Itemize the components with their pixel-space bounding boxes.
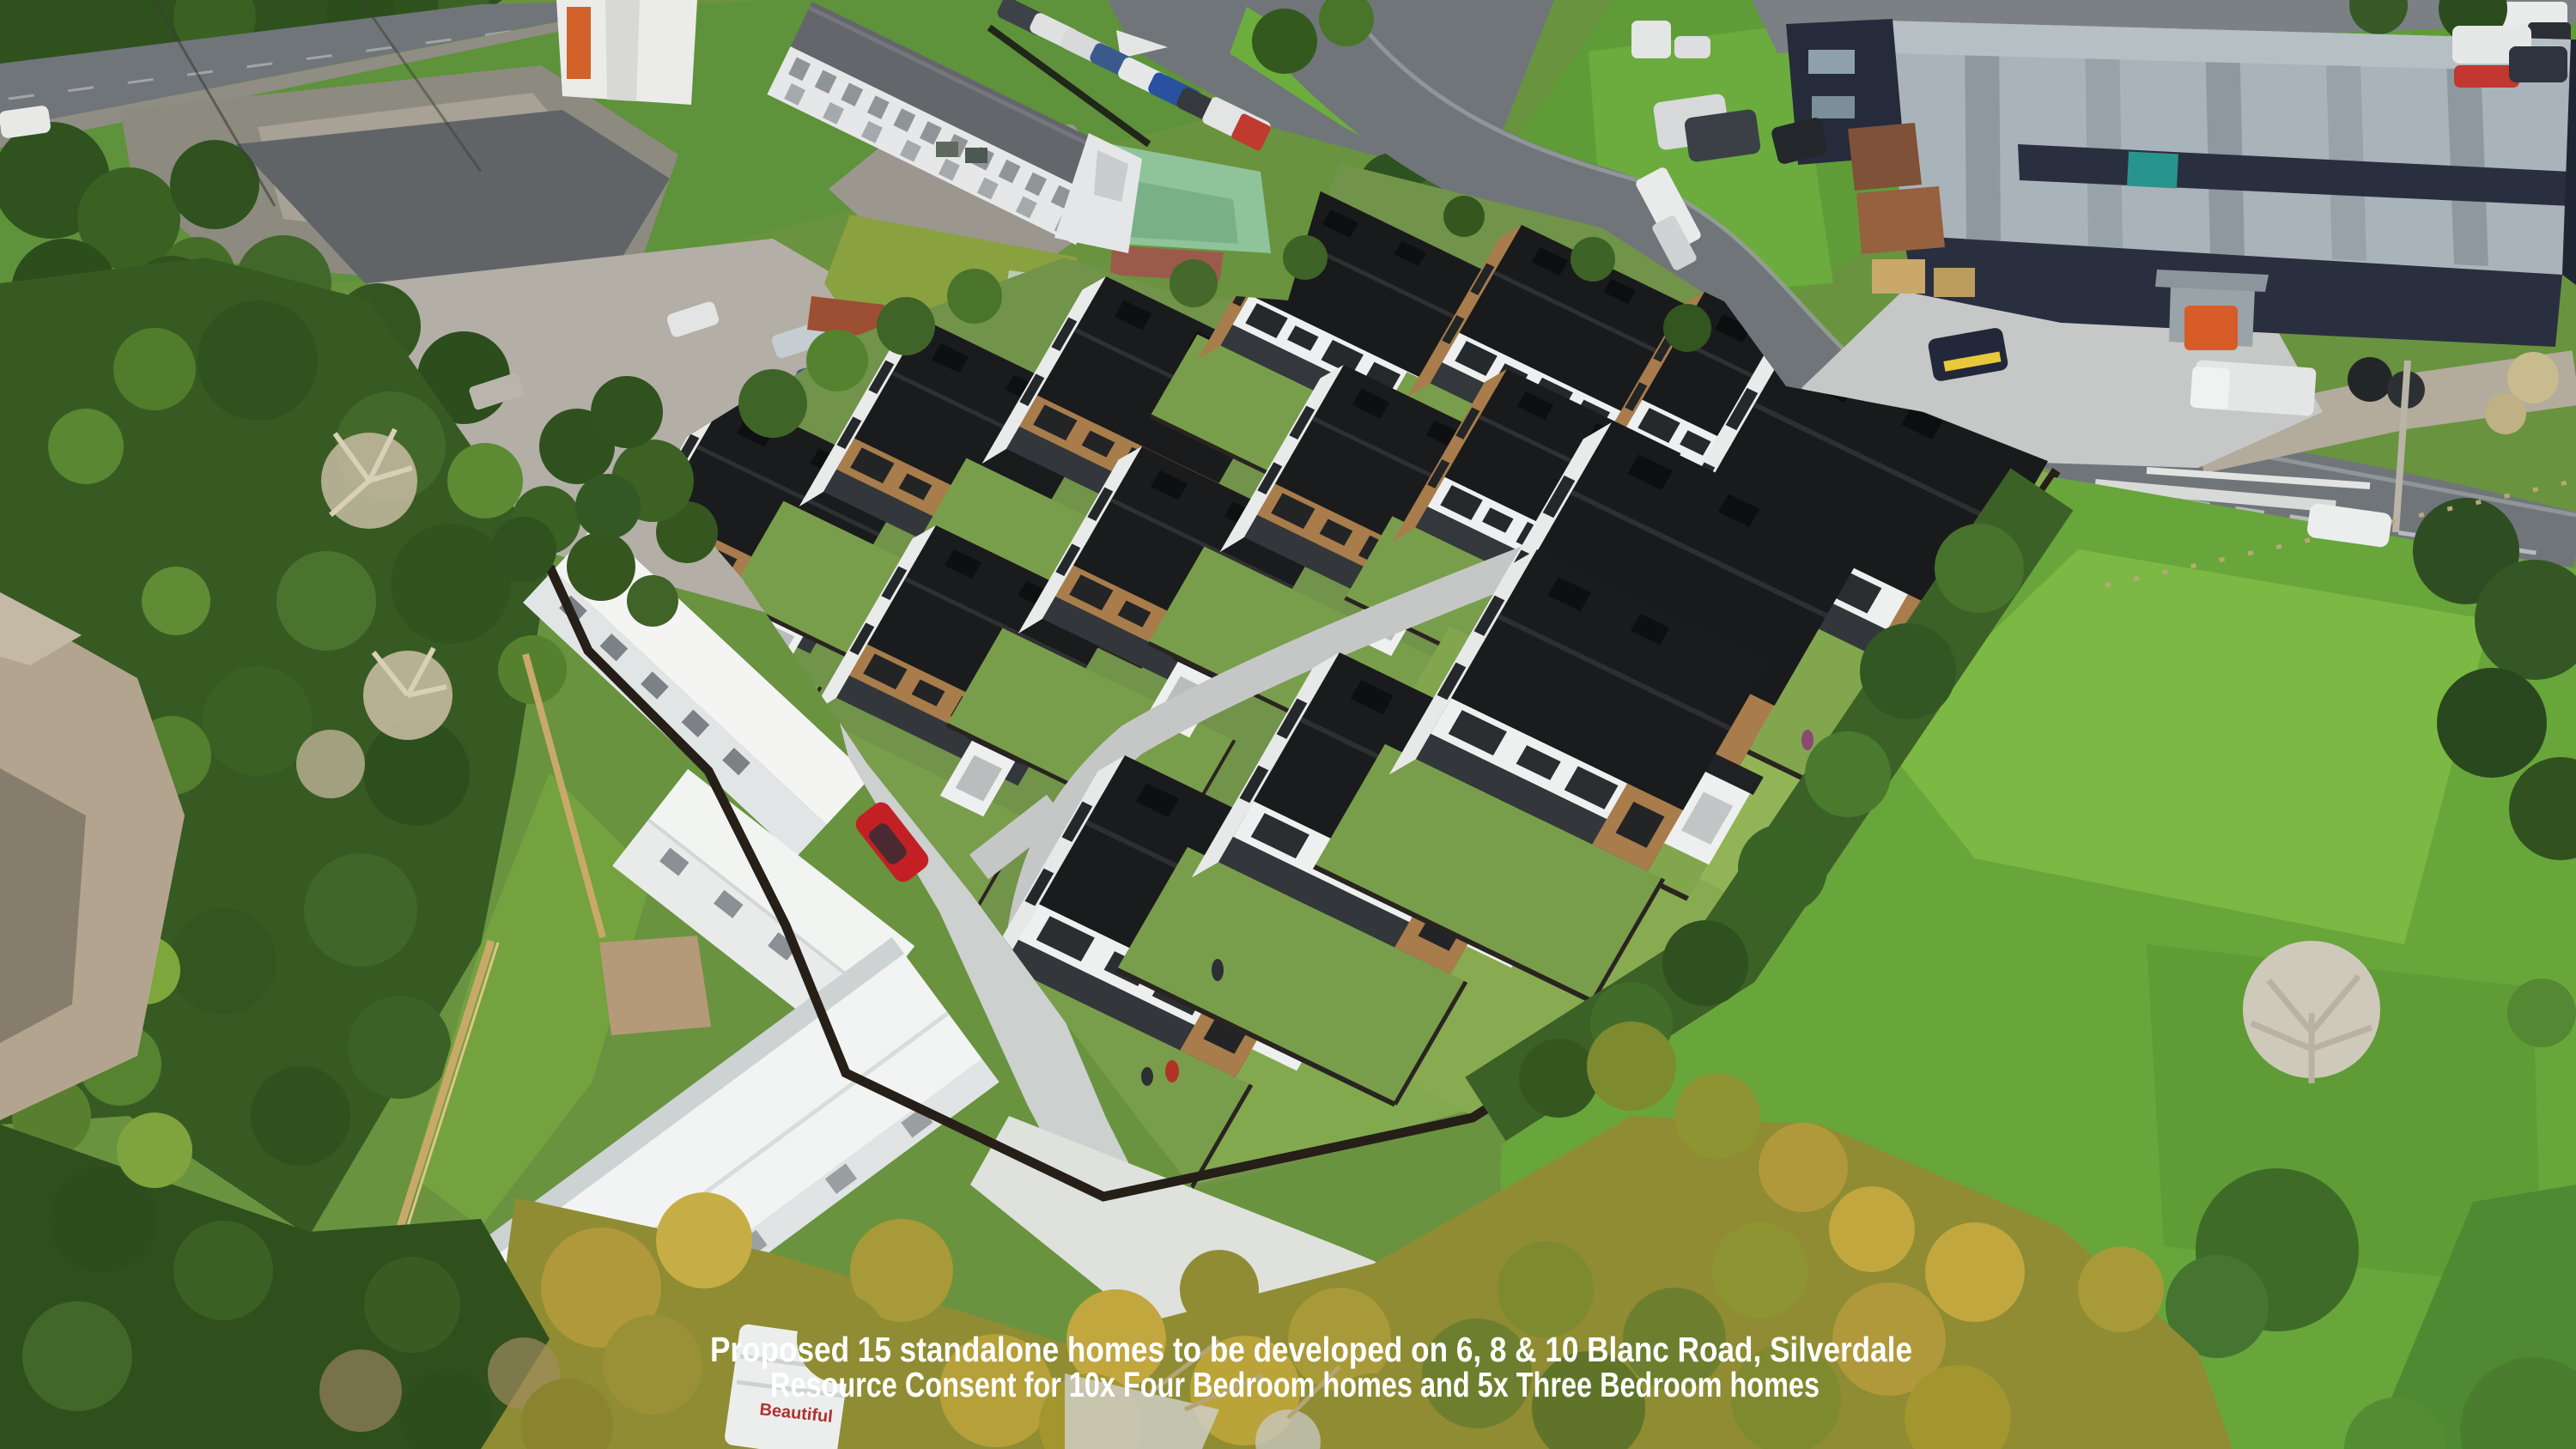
- svg-text:Proposed 15 standalone homes t: Proposed 15 standalone homes to be devel…: [710, 1330, 1912, 1369]
- svg-text:Resource Consent for 10x Four: Resource Consent for 10x Four Bedroom ho…: [770, 1365, 1820, 1404]
